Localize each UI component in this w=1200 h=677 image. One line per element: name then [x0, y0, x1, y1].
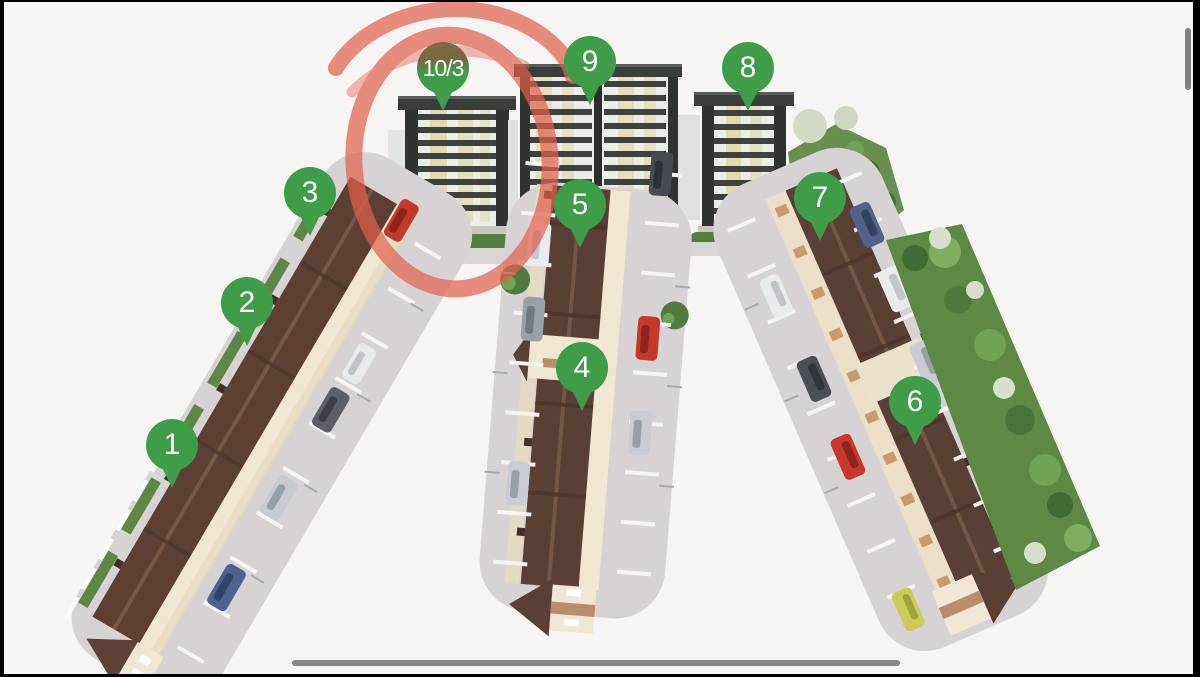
pin-head: 1	[146, 419, 198, 471]
pin-head: 4	[556, 342, 608, 394]
map-pin-3[interactable]: 3	[284, 167, 336, 247]
pin-label: 7	[812, 183, 829, 213]
pin-head: 8	[722, 42, 774, 94]
frame-right	[1193, 0, 1200, 677]
horizontal-scrollbar[interactable]	[292, 660, 900, 666]
frame-top	[0, 0, 1200, 2]
map-pin-6[interactable]: 6	[889, 376, 941, 456]
pin-head: 2	[221, 277, 273, 329]
map-pin-4[interactable]: 4	[556, 342, 608, 422]
pin-head: 7	[794, 172, 846, 224]
map-pin-9[interactable]: 9	[564, 36, 616, 116]
pin-label: 9	[582, 47, 599, 77]
map-pin-8[interactable]: 8	[722, 42, 774, 122]
vertical-scrollbar[interactable]	[1185, 28, 1191, 90]
map-pin-10-3[interactable]: 10/3	[417, 42, 469, 122]
site-plan-viewer: 1 2 3 4 5 6 7 8 9 10/3	[0, 0, 1200, 677]
pin-label: 5	[572, 190, 589, 220]
pin-head: 3	[284, 167, 336, 219]
map-pin-7[interactable]: 7	[794, 172, 846, 252]
pin-label: 4	[574, 353, 591, 383]
pin-label: 3	[302, 178, 319, 208]
frame-left	[0, 0, 4, 677]
pin-label: 10/3	[423, 57, 464, 80]
map-pin-2[interactable]: 2	[221, 277, 273, 357]
pin-label: 8	[740, 53, 757, 83]
pin-head: 10/3	[417, 42, 469, 94]
map-pin-5[interactable]: 5	[554, 179, 606, 259]
pin-label: 1	[164, 430, 181, 460]
pin-head: 5	[554, 179, 606, 231]
pin-head: 9	[564, 36, 616, 88]
pin-label: 2	[239, 288, 256, 318]
map-pin-1[interactable]: 1	[146, 419, 198, 499]
pin-label: 6	[907, 387, 924, 417]
pin-head: 6	[889, 376, 941, 428]
